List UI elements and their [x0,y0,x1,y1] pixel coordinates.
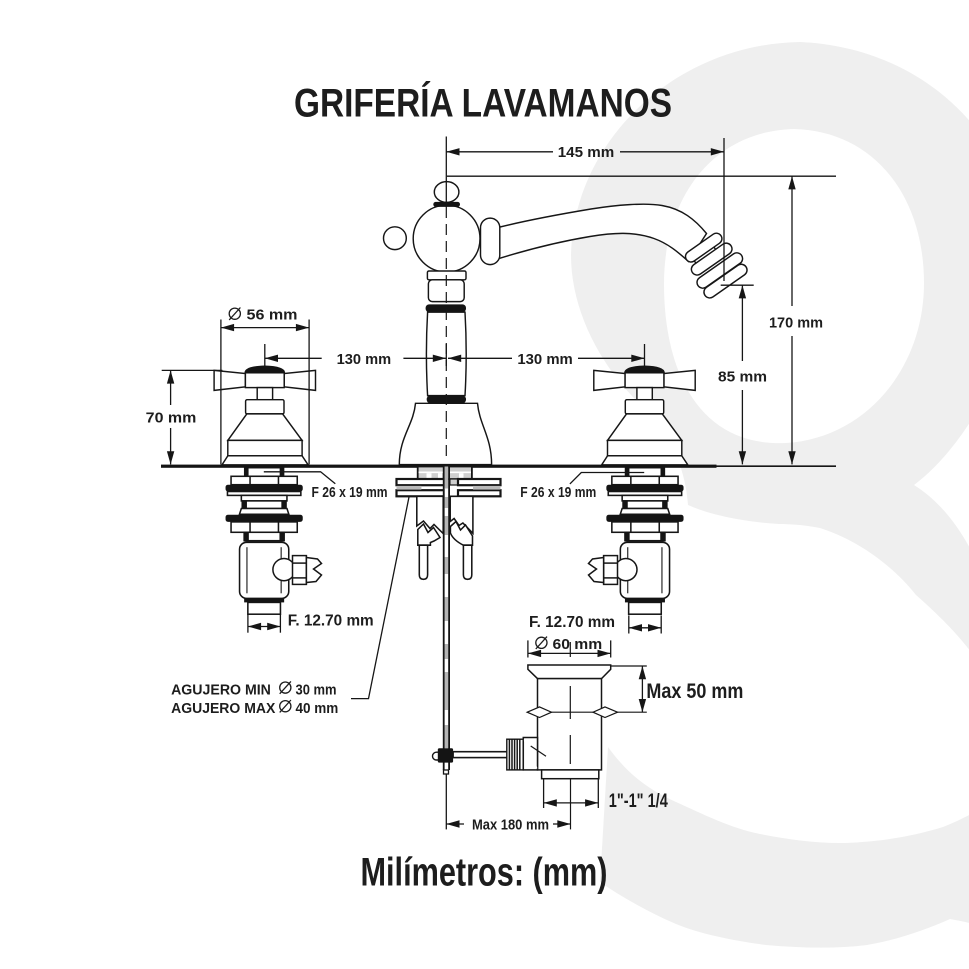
svg-text:Max 50 mm: Max 50 mm [646,680,743,703]
svg-text:56 mm: 56 mm [247,307,298,324]
svg-text:130 mm: 130 mm [337,351,392,368]
svg-text:F. 12.70 mm: F. 12.70 mm [288,613,374,630]
svg-text:130 mm: 130 mm [517,351,572,368]
svg-text:AGUJERO MAX: AGUJERO MAX [171,700,275,717]
svg-text:145 mm: 145 mm [558,144,615,161]
svg-text:40 mm: 40 mm [296,700,339,717]
svg-text:F 26 x 19 mm: F 26 x 19 mm [312,484,388,501]
svg-text:85 mm: 85 mm [718,369,767,386]
svg-text:30 mm: 30 mm [296,681,337,698]
svg-text:F. 12.70 mm: F. 12.70 mm [529,614,615,631]
svg-text:60 mm: 60 mm [553,636,603,653]
svg-text:AGUJERO MIN: AGUJERO MIN [171,681,271,698]
svg-text:1"-1" 1/4: 1"-1" 1/4 [609,791,668,812]
svg-text:GRIFERÍA LAVAMANOS: GRIFERÍA LAVAMANOS [294,81,672,125]
svg-text:Max 180 mm: Max 180 mm [472,816,549,833]
svg-text:70 mm: 70 mm [146,410,197,427]
svg-text:170 mm: 170 mm [769,315,823,332]
svg-text:F 26 x 19 mm: F 26 x 19 mm [520,484,596,501]
svg-text:Milímetros: (mm): Milímetros: (mm) [361,851,608,895]
